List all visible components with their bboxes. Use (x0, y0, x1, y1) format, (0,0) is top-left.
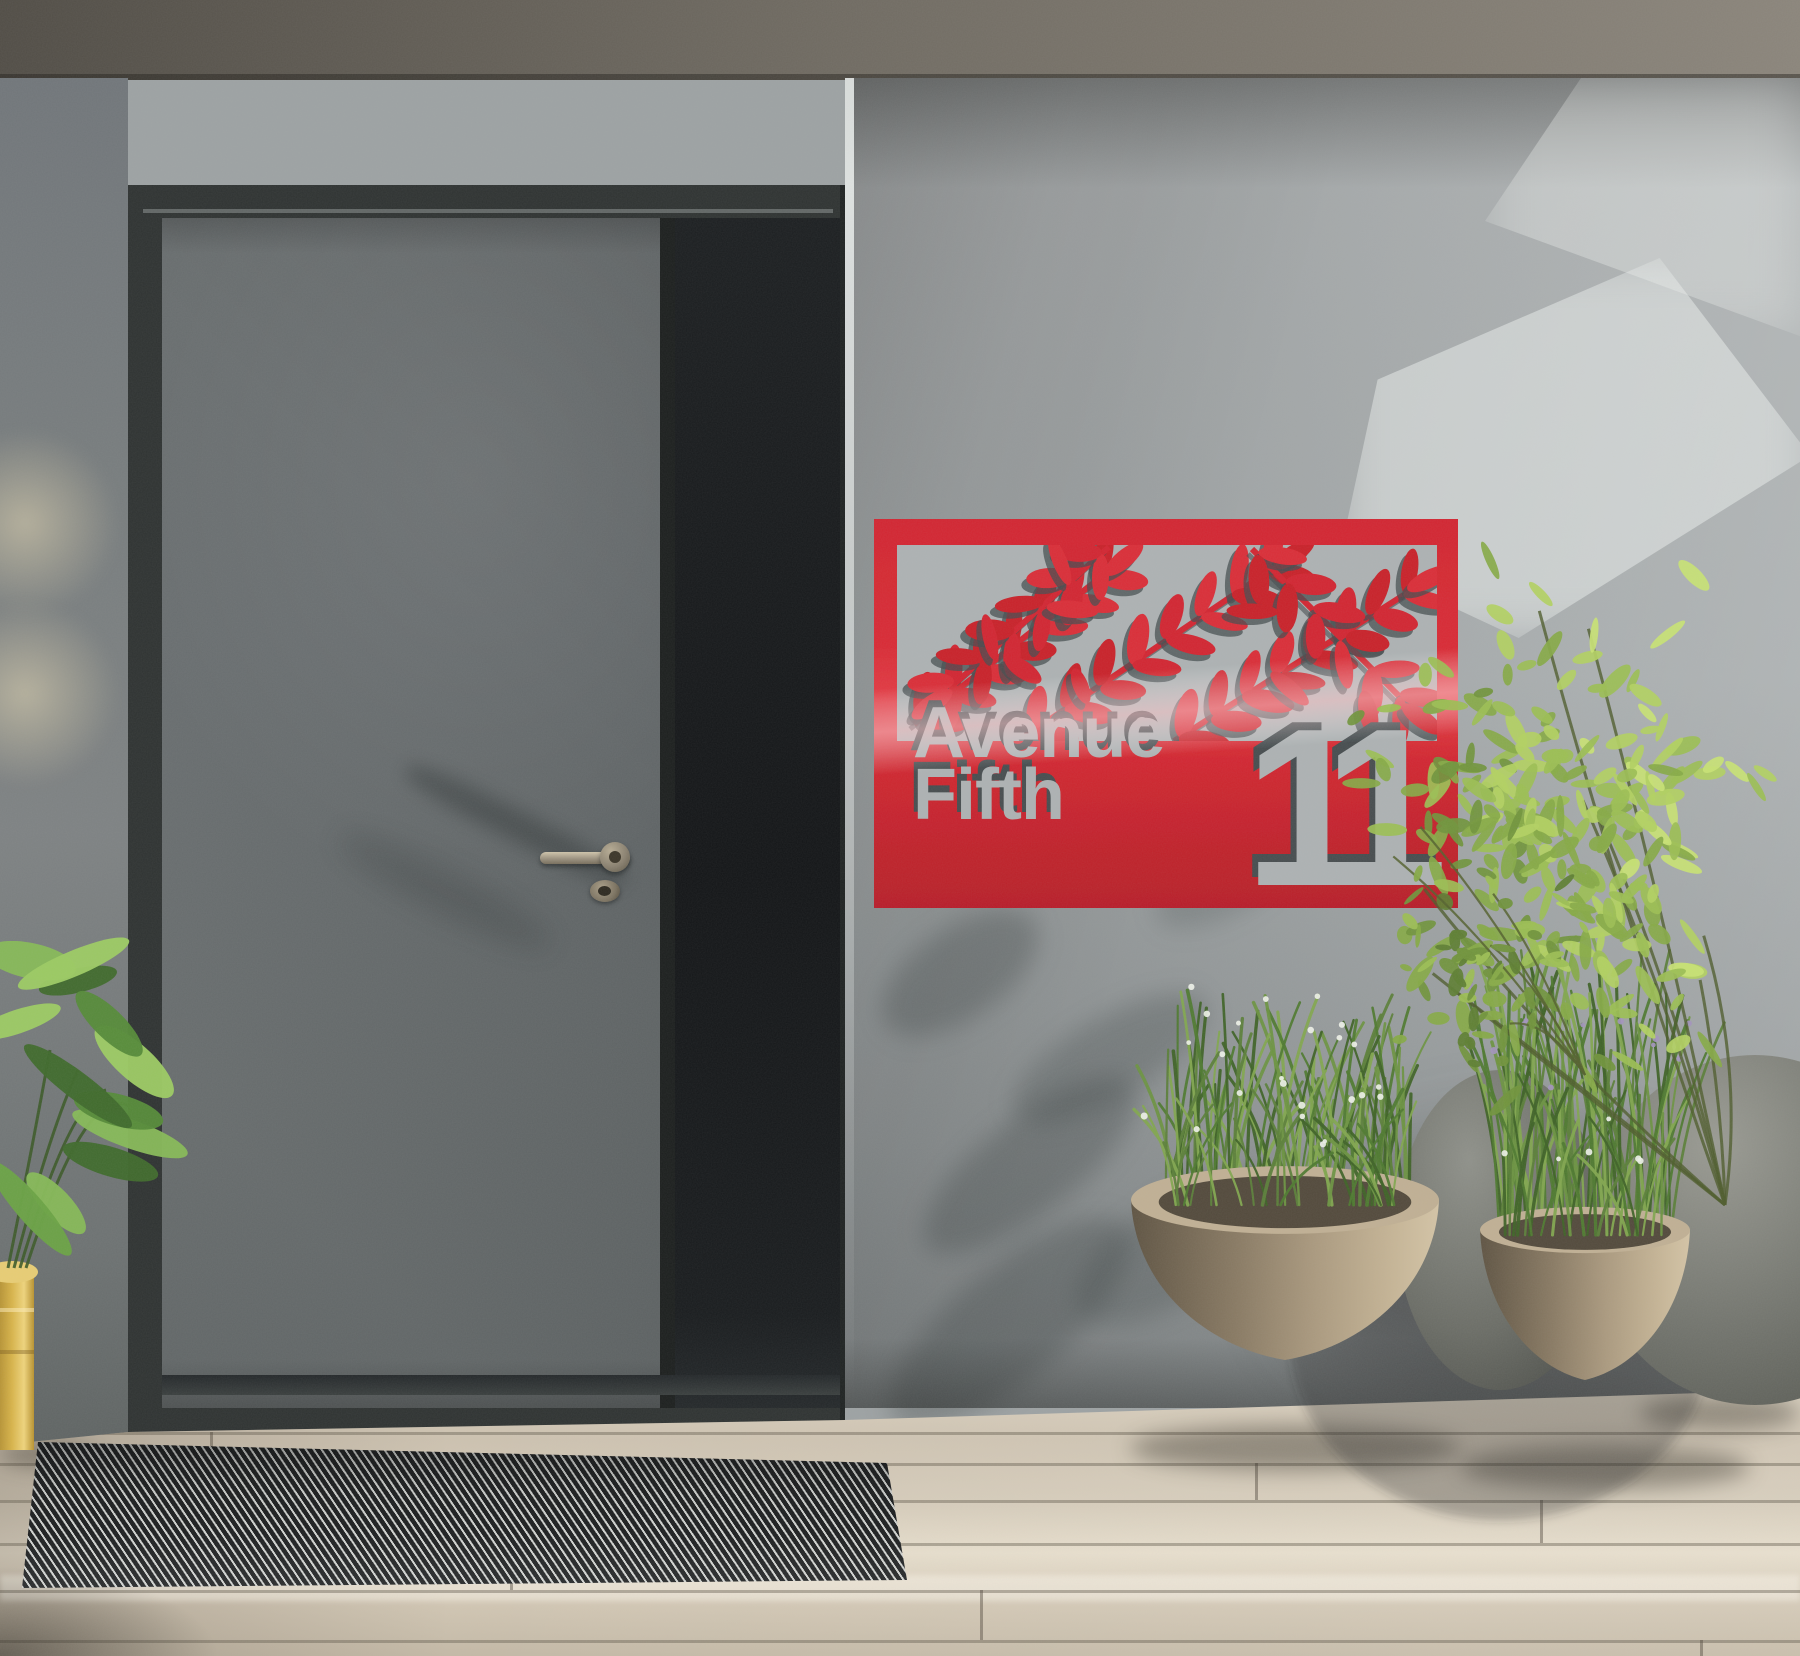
deck-plank-joint (1700, 1640, 1703, 1656)
door-recess (128, 185, 845, 1432)
roof-overhang-beam (0, 0, 1800, 80)
wall-light-glow-2 (0, 598, 120, 788)
door-frame-top-edge (143, 209, 833, 213)
wall-corner-highlight (845, 78, 854, 1408)
yellow-planter (0, 1261, 38, 1450)
keyhole (590, 880, 620, 902)
shrub-large (1255, 515, 1800, 1285)
entrance-scene: Avenue Avenue Fifth Fifth 11 11 (0, 0, 1800, 1656)
front-door (162, 218, 660, 1408)
door-handle-rose (600, 842, 630, 872)
door-gap (660, 218, 675, 1408)
deck-plank-joint (980, 1590, 983, 1640)
left-plant-leaves (0, 929, 192, 1268)
foliage-shadow (860, 885, 1059, 1062)
deck-plank-line (0, 1590, 1800, 1593)
sidelight-panel (675, 218, 840, 1408)
left-houseplant (0, 900, 210, 1460)
door-sheen (162, 218, 660, 1408)
deck-plank-line (0, 1640, 1800, 1643)
door-threshold (162, 1375, 840, 1395)
wall-light-glow-1 (0, 428, 120, 618)
